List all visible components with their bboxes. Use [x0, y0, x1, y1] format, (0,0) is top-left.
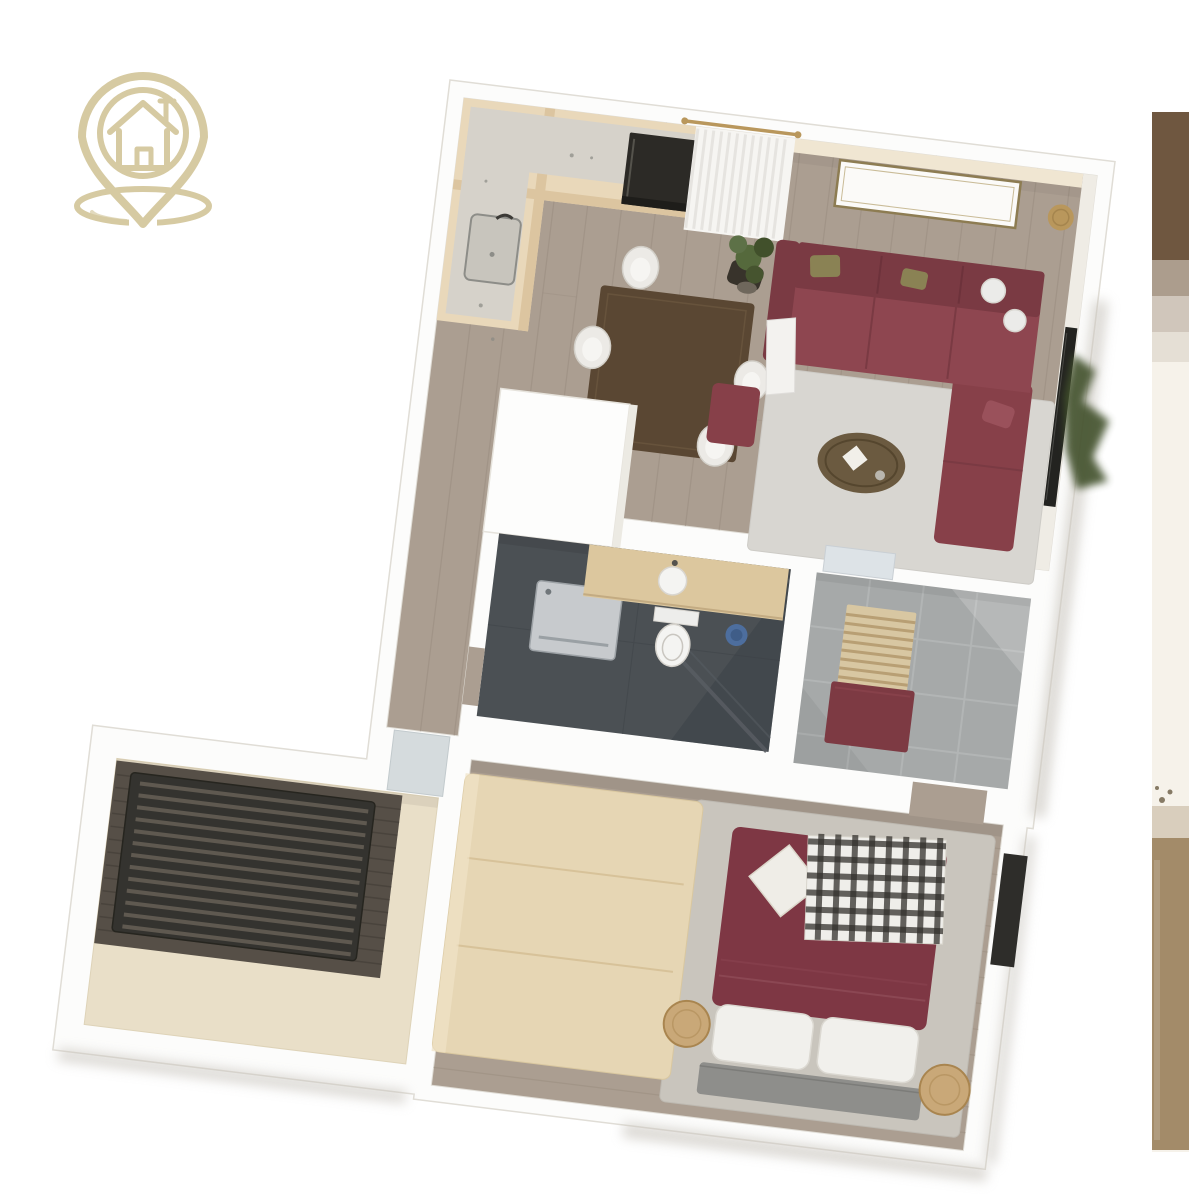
cushion-olive [810, 255, 840, 278]
strip-floor-fade [1152, 806, 1189, 838]
bedroom [427, 727, 1035, 1154]
balcony-glass-door [387, 730, 450, 796]
strip-top-block [1152, 112, 1189, 260]
ottoman [706, 382, 761, 447]
apartment-floor-plan [51, 46, 1147, 1186]
plaid-throw [805, 833, 947, 944]
adjacent-photo-strip [1152, 112, 1189, 1152]
listing-page [0, 0, 1189, 1200]
strip-floor-highlight [1154, 860, 1160, 1140]
balcony-daybed [112, 772, 376, 961]
white-cabinet [483, 388, 638, 548]
bed-pillow-left [711, 1003, 815, 1071]
brand-logo [77, 76, 209, 228]
strip-top-fade-3 [1152, 332, 1189, 362]
floor-plan-render [0, 0, 1189, 1200]
house-location-pin-icon [82, 76, 204, 224]
strip-top-fade-2 [1152, 296, 1189, 332]
kitchen-sink [464, 214, 522, 286]
bed-pillow-right [816, 1016, 920, 1084]
strip-top-fade-1 [1152, 260, 1189, 296]
bathroom [461, 531, 791, 751]
wardrobe [432, 773, 704, 1080]
